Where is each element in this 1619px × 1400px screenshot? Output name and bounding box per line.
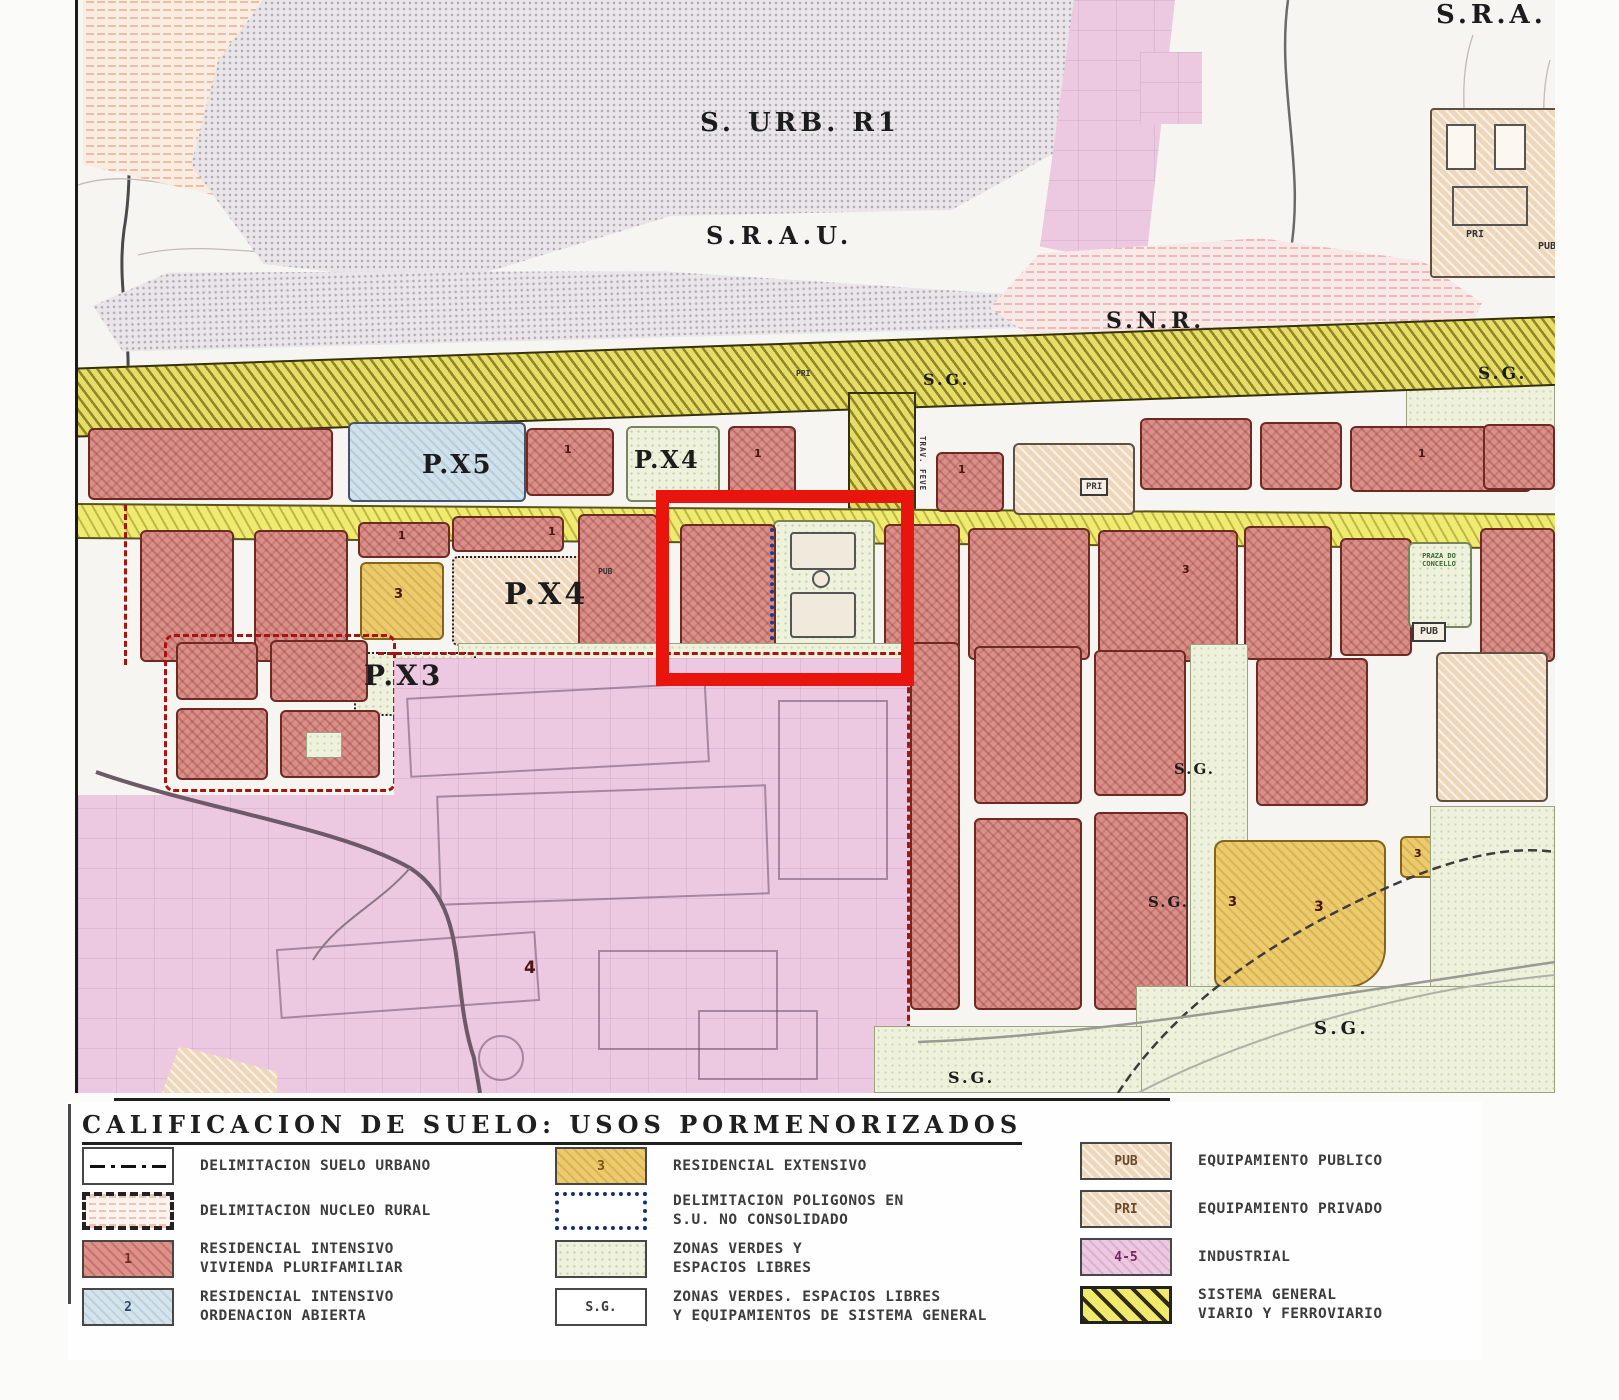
legend-item-zonas-verdes: ZONAS VERDES Y ESPACIOS LIBRES <box>555 1240 811 1278</box>
legend-swatch-nucleo-rural <box>82 1192 174 1230</box>
legend-swatch-industrial: 4-5 <box>1080 1238 1172 1276</box>
legend-item-label: RESIDENCIAL INTENSIVO VIVIENDA PLURIFAMI… <box>200 1240 403 1278</box>
legend-top-rule <box>114 1098 1170 1101</box>
legend-item-residencial-abierta: 2 RESIDENCIAL INTENSIVO ORDENACION ABIER… <box>82 1288 394 1326</box>
legend-swatch-equipamiento-privado: PRI <box>1080 1190 1172 1228</box>
map-label-pub-boxed: PUB <box>1412 622 1446 642</box>
legend-item-suelo-urbano: DELIMITACION SUELO URBANO <box>82 1147 431 1185</box>
legend-swatch-label: 4-5 <box>1114 1250 1137 1265</box>
residential-block <box>1140 418 1252 490</box>
legend-item-sg-viario: SISTEMA GENERAL VIARIO Y FERROVIARIO <box>1080 1286 1383 1324</box>
map-label-sg-mid: S.G. <box>1148 895 1189 910</box>
legend-item-label: EQUIPAMIENTO PUBLICO <box>1198 1152 1383 1171</box>
residential-block <box>526 428 614 496</box>
urban-delimitation-left <box>124 505 127 665</box>
residential-block <box>1256 658 1368 806</box>
block-number: 3 <box>1314 900 1324 914</box>
legend-item-label: INDUSTRIAL <box>1198 1248 1290 1267</box>
legend-swatch-poligonos <box>555 1192 647 1230</box>
map-label-sg-bottom: S.G. <box>948 1070 995 1086</box>
map-label-px3: P.X3 <box>364 662 443 690</box>
block-number: 4 <box>524 960 536 977</box>
legend-item-industrial: 4-5 INDUSTRIAL <box>1080 1238 1290 1276</box>
block-number: 3 <box>1228 896 1237 909</box>
map-label-sg-bottom-right: S.G. <box>1314 1020 1370 1038</box>
factory-tank-outline <box>478 1035 524 1081</box>
map-label-trav-feve: TRAV. FEVE <box>919 436 927 491</box>
block-number: 1 <box>564 444 572 455</box>
highlight-rectangle <box>656 490 914 686</box>
map-label-sg-strip: S.G. <box>1174 762 1215 777</box>
legend-item-label: DELIMITACION NUCLEO RURAL <box>200 1202 431 1221</box>
factory-outline <box>436 784 770 905</box>
legend-item-poligonos: DELIMITACION POLIGONOS EN S.U. NO CONSOL… <box>555 1192 904 1230</box>
residential-block <box>936 452 1004 512</box>
equipment-block <box>1436 652 1548 802</box>
residential-block <box>1094 812 1188 1010</box>
map-label-srau: S.R.A.U. <box>706 224 853 248</box>
legend: CALIFICACION DE SUELO: USOS PORMENORIZAD… <box>68 1102 1482 1360</box>
map-label-px5: P.X5 <box>422 452 493 478</box>
residential-block <box>974 818 1082 1010</box>
residential-block <box>728 426 796 500</box>
map-label-pub-top-right: PUB <box>1538 242 1555 252</box>
urbanizable-band <box>92 250 1044 353</box>
urbanizable-area-s-urb-r1 <box>173 0 1078 300</box>
private-equipment-complex <box>1430 108 1555 278</box>
legend-swatch-zonas-verdes-sg: S.G. <box>555 1288 647 1326</box>
residential-block <box>1480 528 1555 662</box>
legend-item-label: DELIMITACION SUELO URBANO <box>200 1157 431 1176</box>
legend-left-rule <box>68 1104 71 1304</box>
legend-swatch-residencial-extensivo: 3 <box>555 1147 647 1185</box>
legend-item-label: RESIDENCIAL INTENSIVO ORDENACION ABIERTA <box>200 1288 394 1326</box>
industrial-patch-top <box>1140 52 1202 124</box>
legend-item-residencial-extensivo: 3 RESIDENCIAL EXTENSIVO <box>555 1147 867 1185</box>
legend-swatch-label: PUB <box>1114 1154 1137 1169</box>
page: S. URB. R1 S.R.A.U. S.R.A. S.N.R. S.G. S… <box>0 0 1619 1400</box>
block-number: 3 <box>394 588 403 601</box>
rural-delimitation-boundary <box>164 634 396 792</box>
legend-item-zonas-verdes-sg: S.G. ZONAS VERDES. ESPACIOS LIBRES Y EQU… <box>555 1288 987 1326</box>
block-number: 1 <box>548 526 556 537</box>
legend-swatch-residencial-plurifamiliar: 1 <box>82 1240 174 1278</box>
legend-item-label: DELIMITACION POLIGONOS EN S.U. NO CONSOL… <box>673 1192 904 1230</box>
green-sg-area-bottom <box>874 1026 1142 1093</box>
residential-block <box>1483 424 1555 490</box>
legend-item-equipamiento-privado: PRI EQUIPAMIENTO PRIVADO <box>1080 1190 1383 1228</box>
block-number: 1 <box>1418 448 1426 459</box>
zoning-map: S. URB. R1 S.R.A.U. S.R.A. S.N.R. S.G. S… <box>75 0 1555 1093</box>
legend-item-label: ZONAS VERDES. ESPACIOS LIBRES Y EQUIPAMI… <box>673 1288 987 1326</box>
map-label-px4-south: P.X4 <box>504 580 588 610</box>
block-number: 3 <box>1414 848 1422 859</box>
private-equipment-block <box>1013 443 1135 515</box>
legend-item-nucleo-rural: DELIMITACION NUCLEO RURAL <box>82 1192 431 1230</box>
map-label-s-urb-r1: S. URB. R1 <box>700 110 900 136</box>
building-outline <box>1452 186 1528 226</box>
map-label-sg-band: S.G. <box>923 372 970 388</box>
legend-swatch-label: 1 <box>124 1252 132 1267</box>
residential-block <box>578 514 658 650</box>
residential-block <box>1244 526 1332 660</box>
map-label-praza-do-concello: PRAZA DO CONCELLO <box>1420 552 1458 569</box>
map-label-sra: S.R.A. <box>1436 2 1547 28</box>
residential-block <box>1098 530 1238 662</box>
block-number: 1 <box>958 464 966 475</box>
legend-swatch-sg-viario <box>1080 1286 1172 1324</box>
legend-title: CALIFICACION DE SUELO: USOS PORMENORIZAD… <box>82 1110 1022 1145</box>
legend-item-label: EQUIPAMIENTO PRIVADO <box>1198 1200 1383 1219</box>
legend-swatch-zonas-verdes <box>555 1240 647 1278</box>
legend-swatch-equipamiento-publico: PUB <box>1080 1142 1172 1180</box>
block-number: 3 <box>1182 564 1190 575</box>
building-outline <box>1494 124 1526 170</box>
residential-extensive-block <box>1214 840 1386 988</box>
legend-swatch-residencial-abierta: 2 <box>82 1288 174 1326</box>
map-label-pub-small: PUB <box>598 568 612 576</box>
residential-block <box>974 646 1082 804</box>
legend-swatch-label: PRI <box>1114 1202 1137 1217</box>
residential-block <box>88 428 333 500</box>
residential-block <box>1340 538 1412 656</box>
building-outline <box>1446 124 1476 170</box>
map-label-px4-top: P.X4 <box>634 448 700 472</box>
green-sg-area-bottom-right <box>1136 986 1555 1093</box>
legend-swatch-suelo-urbano <box>82 1147 174 1185</box>
block-number: 1 <box>398 530 406 541</box>
residential-block <box>1260 422 1342 490</box>
legend-item-label: SISTEMA GENERAL VIARIO Y FERROVIARIO <box>1198 1286 1383 1324</box>
legend-item-equipamiento-publico: PUB EQUIPAMIENTO PUBLICO <box>1080 1142 1383 1180</box>
factory-outline <box>778 700 888 880</box>
legend-item-label: RESIDENCIAL EXTENSIVO <box>673 1157 867 1176</box>
map-label-snr: S.N.R. <box>1106 310 1205 332</box>
block-number: 1 <box>754 448 762 459</box>
map-label-pri-band: PRI <box>796 370 810 378</box>
map-label-sg-top-right: S.G. <box>1478 366 1527 383</box>
residential-block <box>1094 650 1186 796</box>
factory-outline <box>406 682 710 778</box>
legend-swatch-label: 3 <box>597 1159 605 1174</box>
legend-swatch-label: 2 <box>124 1300 132 1315</box>
residential-block <box>910 642 960 1010</box>
legend-item-label: ZONAS VERDES Y ESPACIOS LIBRES <box>673 1240 811 1278</box>
legend-swatch-label: S.G. <box>585 1300 616 1315</box>
legend-item-residencial-plurifamiliar: 1 RESIDENCIAL INTENSIVO VIVIENDA PLURIFA… <box>82 1240 403 1278</box>
factory-outline <box>698 1010 818 1080</box>
map-label-pri-top-right: PRI <box>1466 230 1484 240</box>
map-label-pri-boxed: PRI <box>1080 478 1108 496</box>
residential-block <box>968 528 1090 660</box>
